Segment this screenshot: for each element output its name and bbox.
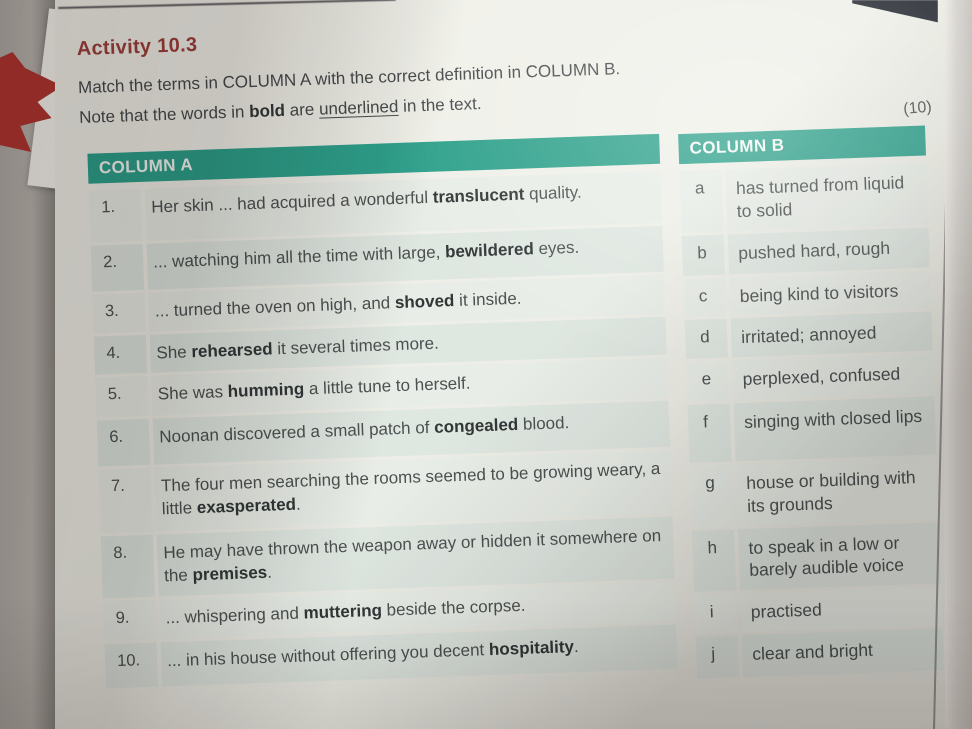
item-number: 6.: [97, 419, 151, 467]
desk-surface-right: [945, 0, 972, 729]
marks-label: (10): [903, 99, 933, 119]
note-text: Note that the words in bold are underlin…: [79, 94, 482, 128]
column-a-table: COLUMN A 1. Her skin ... had acquired a …: [87, 134, 677, 689]
column-b-row: c being kind to visitors: [683, 270, 931, 317]
column-b-row: e perplexed, confused: [686, 353, 934, 402]
column-b-header: COLUMN B: [678, 126, 926, 165]
option-text: pushed hard, rough: [728, 227, 930, 274]
column-b-row: f singing with closed lips: [688, 396, 937, 463]
option-letter: e: [686, 361, 729, 402]
column-b-table: COLUMN B a has turned from liquid to sol…: [678, 126, 944, 679]
option-text: clear and bright: [742, 628, 944, 677]
item-number: 5.: [95, 376, 148, 418]
photo-scene: Activity 10.3 Match the terms in COLUMN …: [0, 0, 972, 729]
option-text: to speak in a low or barely audible voic…: [738, 522, 941, 590]
option-text: perplexed, confused: [732, 353, 934, 400]
option-letter: d: [685, 319, 728, 359]
option-letter: h: [692, 529, 736, 592]
item-number: 9.: [103, 600, 156, 642]
column-b-row: h to speak in a low or barely audible vo…: [692, 522, 941, 592]
item-number: 7.: [98, 468, 152, 534]
option-letter: b: [682, 234, 725, 275]
item-number: 1.: [89, 189, 143, 243]
column-b-row: b pushed hard, rough: [682, 227, 930, 276]
option-text: has turned from liquid to solid: [725, 163, 928, 231]
column-b-row: g house or building with its grounds: [690, 457, 939, 527]
option-letter: a: [679, 170, 723, 233]
option-text: singing with closed lips: [734, 396, 937, 461]
option-letter: i: [694, 593, 737, 633]
column-b-row: j clear and bright: [696, 628, 944, 679]
item-number: 3.: [92, 293, 145, 333]
column-a-rows: 1. Her skin ... had acquired a wonderful…: [89, 171, 678, 689]
option-text: being kind to visitors: [729, 270, 931, 316]
column-b-row: a has turned from liquid to solid: [679, 163, 928, 233]
option-text: house or building with its grounds: [736, 457, 939, 525]
column-b-rows: a has turned from liquid to solid b push…: [679, 163, 944, 679]
option-letter: c: [683, 277, 726, 317]
column-b-row: d irritated; annoyed: [685, 312, 933, 359]
option-text: practised: [740, 586, 942, 632]
item-number: 10.: [105, 643, 159, 689]
option-letter: j: [696, 635, 739, 678]
column-b-row: i practised: [694, 586, 942, 633]
option-text: irritated; annoyed: [731, 312, 933, 358]
instruction-text: Match the terms in COLUMN A with the cor…: [78, 59, 621, 98]
activity-content: Activity 10.3 Match the terms in COLUMN …: [0, 0, 972, 729]
item-number: 8.: [101, 535, 155, 599]
activity-title: Activity 10.3: [76, 34, 197, 61]
option-letter: f: [688, 404, 732, 463]
option-letter: g: [690, 464, 734, 527]
item-number: 2.: [91, 244, 145, 292]
item-number: 4.: [94, 334, 147, 374]
